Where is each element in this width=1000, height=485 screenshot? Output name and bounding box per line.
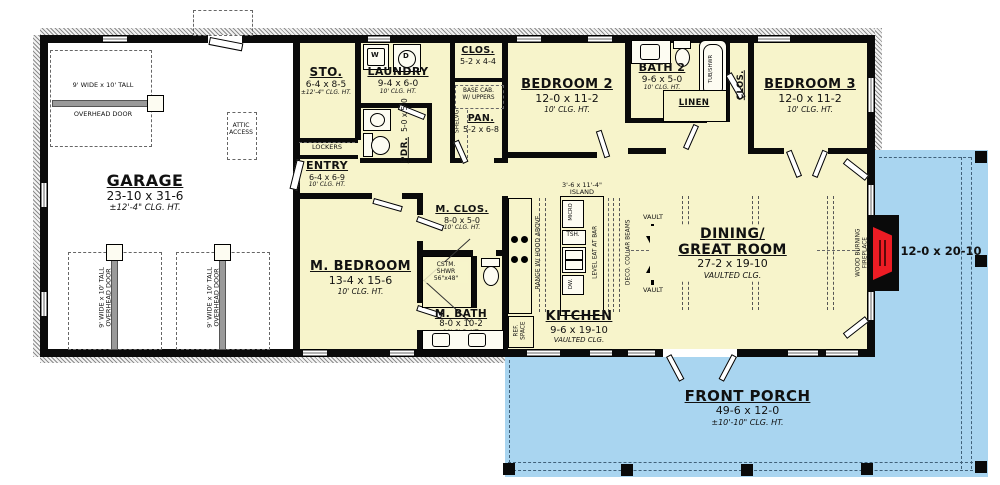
bedroom2-dims: 12-0 x 11-2 (517, 93, 617, 106)
window (303, 349, 327, 357)
pdr-toilet-bowl (371, 136, 390, 155)
porch-post (621, 464, 633, 476)
overhead-door-note-right: 9' WIDE x 10' TALL OVERHEAD DOOR (207, 254, 222, 340)
clos3-label: CLOS. (729, 56, 747, 114)
base-cab-l2: W/ UPPERS (455, 95, 502, 102)
range-burner (511, 236, 518, 243)
side-porch-top-dash (879, 157, 971, 158)
wall-mclos-bottom-r (496, 250, 502, 256)
window (517, 35, 541, 43)
eat-bar-label: LEVEL EAT AT BAR (593, 212, 600, 292)
garage-dims: 23-10 x 31-6 (70, 190, 220, 204)
sto-ceil: ±12'-4" CLG. HT. (297, 90, 355, 97)
lockers-text: LOCKERS (299, 144, 355, 151)
garage-stoop (193, 10, 253, 36)
window (103, 35, 127, 43)
bedroom2-label: BEDROOM 2 12-0 x 11-2 10' CLG. HT. (517, 78, 617, 114)
window (527, 349, 560, 357)
linen-label: LINEN (663, 99, 725, 109)
bedroom3-name: BEDROOM 3 (760, 78, 860, 93)
wall-bedroom3-bottom-l (748, 148, 784, 154)
dishwasher-text: DW. (569, 268, 575, 300)
pdr-name: PDR. (400, 137, 410, 163)
dryer-letter: D (403, 52, 409, 60)
wall-bedroom2-bottom (505, 152, 597, 158)
clos-hall-name: CLOS. (455, 46, 501, 57)
window (588, 35, 612, 43)
kitchen-name: KITCHEN (533, 310, 625, 325)
great-room-name2: GREAT ROOM (650, 242, 815, 258)
micro-label: MICRO (569, 193, 575, 231)
window (40, 183, 48, 207)
garage-ceil: ±12'-4" CLG. HT. (70, 204, 220, 214)
clos3-name: CLOS. (736, 70, 746, 100)
mclos-label: M. CLOS. 8-0 x 5-0 10' CLG. HT. (428, 204, 496, 232)
window (867, 78, 875, 112)
fireplace-grate (879, 240, 881, 266)
window (788, 349, 818, 357)
wall-sto-right (355, 42, 361, 140)
washer-letter: W (371, 51, 379, 59)
front-porch-ceil: ±10'-10" CLG. HT. (655, 418, 840, 427)
mbath-sink (432, 333, 450, 347)
porch-post (861, 463, 873, 475)
overhead-door-note-l2: OVERHEAD DOOR (60, 111, 146, 118)
collar-beams-text: DECO. COLLAR BEAMS (626, 210, 633, 294)
pantry-name: PAN. (458, 114, 504, 125)
porch-post (975, 151, 987, 163)
great-room-name1: DINING/ (650, 226, 815, 242)
collar-beams-label: DECO. COLLAR BEAMS (626, 210, 633, 294)
mbath-sink (468, 333, 486, 347)
island-dims-label: 3'-6 x 11'-4" ISLAND (550, 182, 614, 197)
window (390, 349, 414, 357)
floor-plan: GARAGE 23-10 x 31-6 ±12'-4" CLG. HT. 9' … (0, 0, 1000, 485)
front-porch-name: FRONT PORCH (655, 388, 840, 405)
kitchen-dims: 9-6 x 19-10 (533, 325, 625, 337)
kitchen-ceil: VAULTED CLG. (533, 336, 625, 344)
window (826, 349, 858, 357)
siding-hatch-bottom (40, 357, 505, 363)
wall-mbed-top-left (296, 193, 372, 199)
cstm-l3: 56"x48" (424, 276, 468, 283)
porch-post (741, 464, 753, 476)
base-cab-label: BASE CAB. W/ UPPERS (455, 88, 502, 101)
garage-name: GARAGE (70, 172, 220, 190)
front-porch-dims: 49-6 x 12-0 (655, 405, 840, 418)
garage-label: GARAGE 23-10 x 31-6 ±12'-4" CLG. HT. (70, 172, 220, 214)
pantry-label: PAN. 5-2 x 6-8 (458, 114, 504, 134)
mbedroom-dims: 13-4 x 15-6 (303, 275, 418, 288)
range-burner (521, 236, 528, 243)
window (368, 35, 390, 43)
bedroom2-name: BEDROOM 2 (517, 78, 617, 93)
porch-post (975, 461, 987, 473)
front-porch-left-dash (509, 360, 510, 463)
base-cab-l1: BASE CAB. (455, 88, 502, 95)
ohd-l2: OVERHEAD DOOR (214, 254, 221, 340)
bath2-label: BATH 2 9-6 x 5-0 10' CLG. HT. (630, 62, 694, 92)
window (590, 349, 612, 357)
front-porch-label: FRONT PORCH 49-6 x 12-0 ±10'-10" CLG. HT… (655, 388, 840, 427)
kitchen-label: KITCHEN 9-6 x 19-10 VAULTED CLG. (533, 310, 625, 344)
collar-beam (827, 196, 834, 310)
fireplace-l1: WOOD BURNING (855, 213, 862, 293)
wall-mbed-right-a (417, 193, 423, 215)
window (628, 349, 655, 357)
window (40, 292, 48, 316)
vault-label-top: VAULT (634, 214, 672, 221)
bedroom2-ceil: 10' CLG. HT. (517, 106, 617, 115)
mclos-ceil: 10' CLG. HT. (428, 225, 496, 232)
range-burner (521, 256, 528, 263)
fireplace-l2: FIREPLACE (862, 213, 869, 293)
collar-beam (539, 198, 546, 312)
entry-ceil: 10' CLG. HT. (296, 182, 358, 189)
exterior-wall-bottom (40, 349, 875, 357)
range-burner (511, 256, 518, 263)
vault-text: VAULT (634, 287, 672, 294)
laundry-name: LAUNDRY (362, 66, 434, 79)
overhead-door-motor (147, 95, 164, 112)
attic-note-l2: ACCESS (220, 130, 262, 137)
pantry-dims: 5-2 x 6-8 (458, 125, 504, 134)
great-room-label: DINING/ GREAT ROOM 27-2 x 19-10 VAULTED … (650, 226, 815, 280)
vault-label-bottom: VAULT (634, 287, 672, 294)
entry-label: ENTRY 6-4 x 6-9 10' CLG. HT. (296, 160, 358, 189)
fireplace-grate (884, 240, 886, 266)
entry-name: ENTRY (296, 160, 358, 173)
eat-bar-text: LEVEL EAT AT BAR (593, 212, 600, 292)
wall-pdr-right (427, 103, 432, 163)
window (867, 185, 875, 215)
front-porch-bottom-dash-inner (508, 462, 978, 463)
side-porch-right-dash-outer (971, 157, 972, 469)
siding-hatch-right (875, 28, 882, 150)
ohd-l2: OVERHEAD DOOR (106, 254, 113, 340)
bath2-name: BATH 2 (630, 62, 694, 75)
wall-bedroom3-left (748, 35, 754, 153)
side-porch-dims: 12-0 x 20-10 (896, 245, 986, 258)
window (867, 292, 875, 320)
siding-hatch-top (40, 28, 875, 35)
mclos-name: M. CLOS. (428, 204, 496, 216)
collar-beam (613, 198, 620, 312)
linen-name: LINEN (663, 99, 725, 109)
attic-access-note: ATTIC ACCESS (220, 123, 262, 137)
wall-hall-dining (628, 148, 666, 154)
wall-shower-toilet (472, 256, 477, 308)
trash-text: TSH. (562, 232, 584, 239)
ref-l2: SPACE (520, 311, 527, 351)
dishwasher-label: DW. (569, 268, 575, 300)
window (758, 35, 790, 43)
mbedroom-ceil: 10' CLG. HT. (303, 288, 418, 297)
great-room-dims: 27-2 x 19-10 (650, 258, 815, 271)
laundry-label: LAUNDRY 9-4 x 6-0 10' CLG. HT. (362, 66, 434, 96)
custom-shower-label: CSTM. SHWR 56"x48" (424, 262, 468, 283)
porch-post (503, 463, 515, 475)
siding-hatch-left (33, 35, 40, 357)
bedroom3-label: BEDROOM 3 12-0 x 11-2 10' CLG. HT. (760, 78, 860, 114)
clos-hall-label: CLOS. 5-2 x 4-4 (455, 46, 501, 66)
overhead-door-note: 9' WIDE x 10' TALL OVERHEAD DOOR (60, 82, 146, 119)
bedroom3-ceil: 10' CLG. HT. (760, 106, 860, 115)
fireplace-label: WOOD BURNING FIREPLACE (855, 213, 868, 293)
trash-label: TSH. (562, 232, 584, 239)
eat-bar-dash (608, 198, 609, 312)
mbedroom-label: M. BEDROOM 13-4 x 15-6 10' CLG. HT. (303, 260, 418, 296)
overhead-door-note-l1: 9' WIDE x 10' TALL (60, 82, 146, 89)
ref-label: REF. SPACE (513, 311, 526, 351)
wall-clos-bottom (450, 78, 505, 82)
side-porch-dims-text: 12-0 x 20-10 (896, 245, 986, 258)
side-porch-right-dash-inner (961, 157, 962, 469)
sto-name: STO. (297, 66, 355, 80)
porch-double-door-opening (663, 349, 737, 357)
great-room-ceil: VAULTED CLG. (650, 271, 815, 280)
pdr-dims: 5-0 x 5-0 (400, 98, 409, 132)
mbedroom-name: M. BEDROOM (303, 260, 418, 275)
ref-l1: REF. (513, 311, 520, 351)
laundry-ceil: 10' CLG. HT. (362, 89, 434, 96)
overhead-door-note-left: 9' WIDE x 10' TALL OVERHEAD DOOR (99, 254, 114, 340)
sto-label: STO. 6-4 x 8-5 ±12'-4" CLG. HT. (297, 66, 355, 97)
clos-hall-dims: 5-2 x 4-4 (455, 57, 501, 66)
lockers-label: LOCKERS (299, 144, 355, 151)
micro-text: MICRO (569, 193, 575, 231)
fireplace-firebox (873, 227, 892, 280)
wall-bedroom3-bottom-r (828, 148, 875, 154)
wall-pantry-bottom-r (494, 158, 508, 163)
pdr-label: PDR. 5-0 x 5-0 (393, 103, 411, 163)
pdr-sink (363, 109, 391, 131)
mbath-toilet-bowl (483, 266, 499, 286)
bedroom3-dims: 12-0 x 11-2 (760, 93, 860, 106)
vault-text: VAULT (634, 214, 672, 221)
